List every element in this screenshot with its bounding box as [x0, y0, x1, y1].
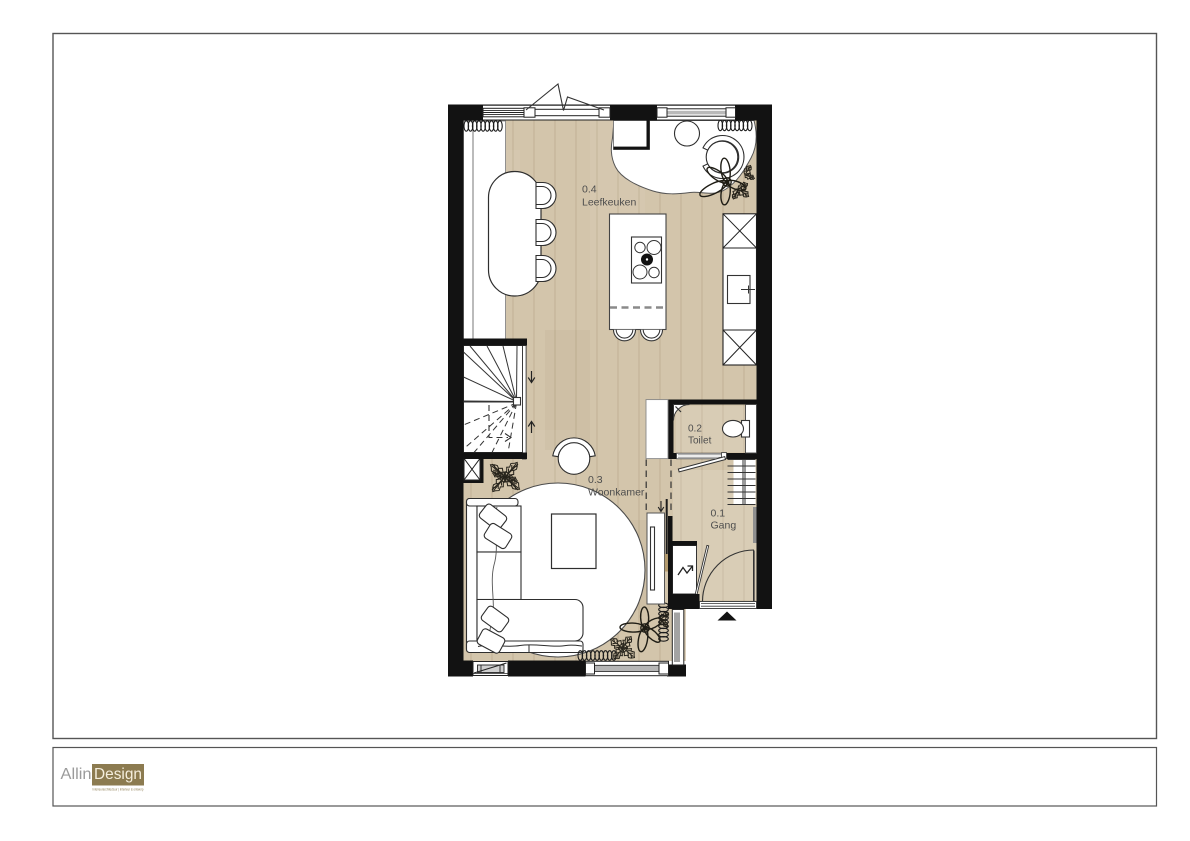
svg-text:Gang: Gang: [711, 520, 737, 532]
svg-text:Woonkamer: Woonkamer: [588, 487, 645, 499]
svg-text:0.4: 0.4: [582, 184, 597, 196]
svg-text:0.1: 0.1: [711, 508, 726, 520]
svg-text:Design: Design: [94, 766, 142, 783]
svg-text:Allin: Allin: [61, 766, 92, 783]
svg-text:0.2: 0.2: [688, 424, 702, 435]
svg-text:Interieurarchitectuur | Interi: Interieurarchitectuur | Interieur & ontw…: [93, 788, 144, 792]
svg-text:0.3: 0.3: [588, 474, 603, 486]
svg-text:Leefkeuken: Leefkeuken: [582, 197, 636, 209]
svg-text:Toilet: Toilet: [688, 436, 712, 447]
